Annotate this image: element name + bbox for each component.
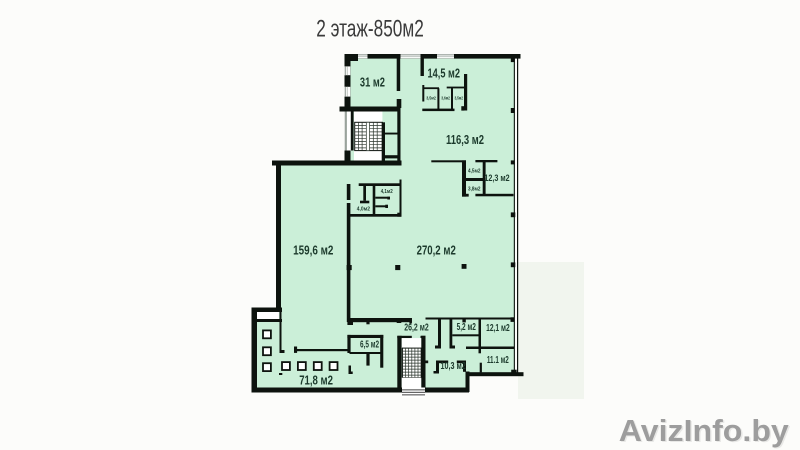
svg-text:12,3 м2: 12,3 м2 bbox=[484, 173, 509, 184]
svg-text:71,8 м2: 71,8 м2 bbox=[299, 373, 333, 387]
svg-text:159,6 м2: 159,6 м2 bbox=[293, 244, 333, 258]
svg-text:4,1м2: 4,1м2 bbox=[381, 189, 393, 195]
svg-text:14,5 м2: 14,5 м2 bbox=[428, 66, 461, 80]
svg-text:3,8м2: 3,8м2 bbox=[468, 186, 481, 192]
svg-text:6,5 м2: 6,5 м2 bbox=[360, 339, 379, 351]
svg-text:31 м2: 31 м2 bbox=[360, 76, 385, 90]
svg-text:4,0м2: 4,0м2 bbox=[357, 207, 370, 213]
svg-text:3,5м2: 3,5м2 bbox=[455, 96, 464, 102]
svg-text:3,6м2: 3,6м2 bbox=[441, 96, 450, 102]
svg-text:2 этаж-850м2: 2 этаж-850м2 bbox=[316, 16, 424, 43]
svg-text:5,2 м2: 5,2 м2 bbox=[457, 321, 476, 333]
svg-text:26,2 м2: 26,2 м2 bbox=[404, 322, 429, 334]
svg-text:3,5м2: 3,5м2 bbox=[426, 96, 436, 102]
svg-text:10,3 м2: 10,3 м2 bbox=[441, 360, 466, 372]
svg-text:AvizInfo.by: AvizInfo.by bbox=[619, 413, 790, 448]
svg-text:12,1 м2: 12,1 м2 bbox=[486, 323, 510, 334]
svg-text:4,5м2: 4,5м2 bbox=[468, 168, 481, 174]
svg-text:116,3 м2: 116,3 м2 bbox=[446, 133, 484, 147]
svg-text:11.1 м2: 11.1 м2 bbox=[487, 354, 509, 366]
svg-text:270,2 м2: 270,2 м2 bbox=[417, 244, 456, 258]
